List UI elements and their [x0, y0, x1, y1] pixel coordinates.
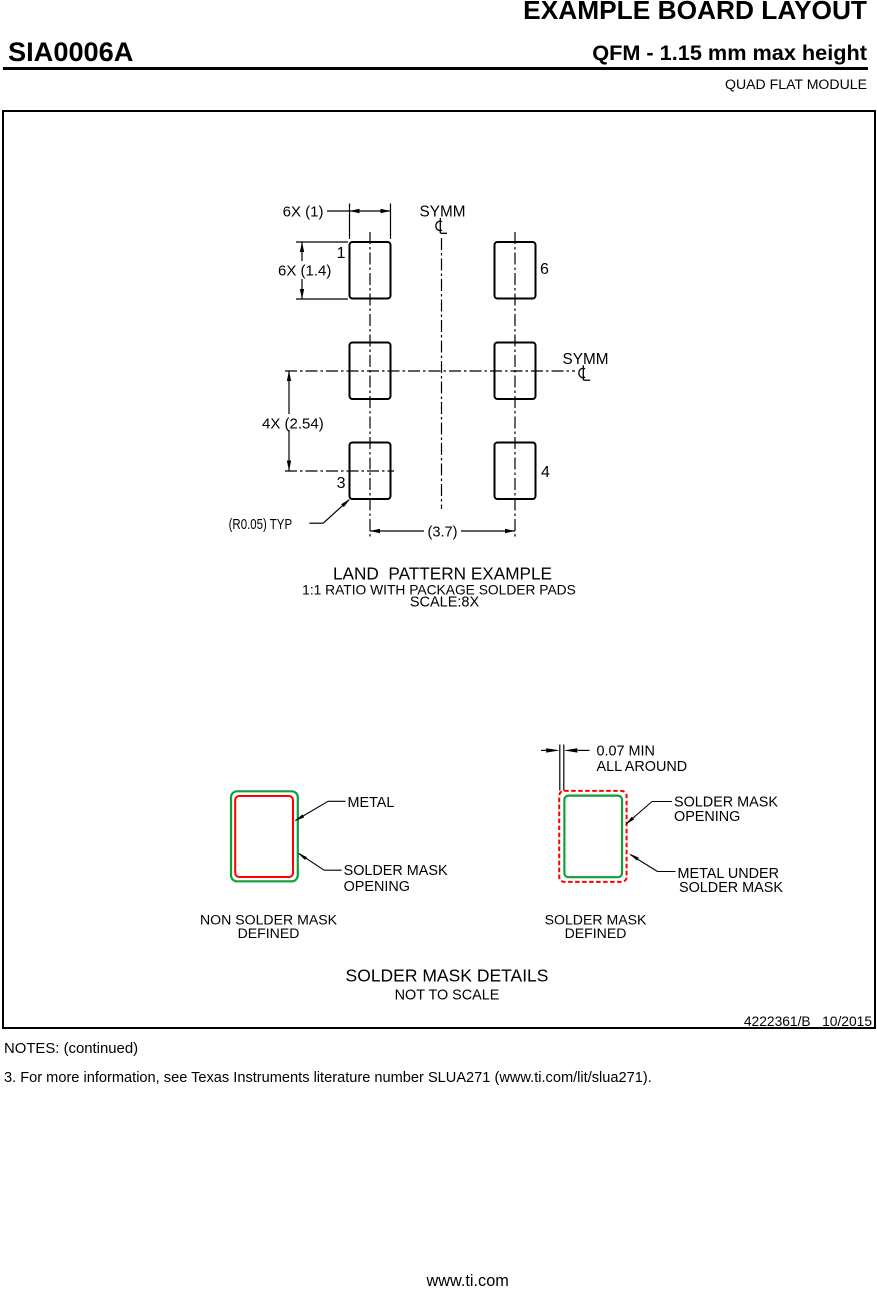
svg-text:6: 6 [540, 261, 549, 278]
svg-text:DEFINED: DEFINED [565, 925, 627, 941]
svg-text:6X (1.4): 6X (1.4) [278, 263, 331, 280]
svg-text:LAND PATTERN EXAMPLE: LAND PATTERN EXAMPLE [333, 564, 552, 584]
svg-text:4X (2.54): 4X (2.54) [262, 416, 324, 433]
svg-text:1: 1 [337, 245, 346, 262]
svg-text:NOT TO SCALE: NOT TO SCALE [395, 987, 500, 1003]
svg-text:0.07 MIN: 0.07 MIN [597, 744, 655, 760]
svg-text:SYMM: SYMM [420, 204, 466, 221]
svg-text:SOLDER MASK: SOLDER MASK [344, 863, 448, 879]
svg-text:METAL: METAL [348, 795, 395, 811]
svg-text:SOLDER MASK DETAILS: SOLDER MASK DETAILS [346, 966, 549, 986]
svg-text:6X (1): 6X (1) [283, 204, 324, 221]
svg-text:(R0.05) TYP: (R0.05) TYP [229, 517, 293, 533]
svg-text:OPENING: OPENING [344, 879, 410, 895]
svg-text:4: 4 [541, 464, 550, 481]
svg-text:(3.7): (3.7) [427, 524, 457, 540]
svg-text:4222361/B 10/2015: 4222361/B 10/2015 [744, 1014, 872, 1029]
svg-text:SOLDER MASK: SOLDER MASK [679, 880, 783, 896]
svg-text:SCALE:8X: SCALE:8X [410, 595, 480, 611]
svg-text:DEFINED: DEFINED [238, 925, 300, 941]
svg-text:ALL AROUND: ALL AROUND [597, 759, 688, 775]
svg-text:OPENING: OPENING [674, 809, 740, 825]
svg-text:SYMM: SYMM [563, 351, 609, 368]
svg-text:3: 3 [337, 475, 346, 492]
